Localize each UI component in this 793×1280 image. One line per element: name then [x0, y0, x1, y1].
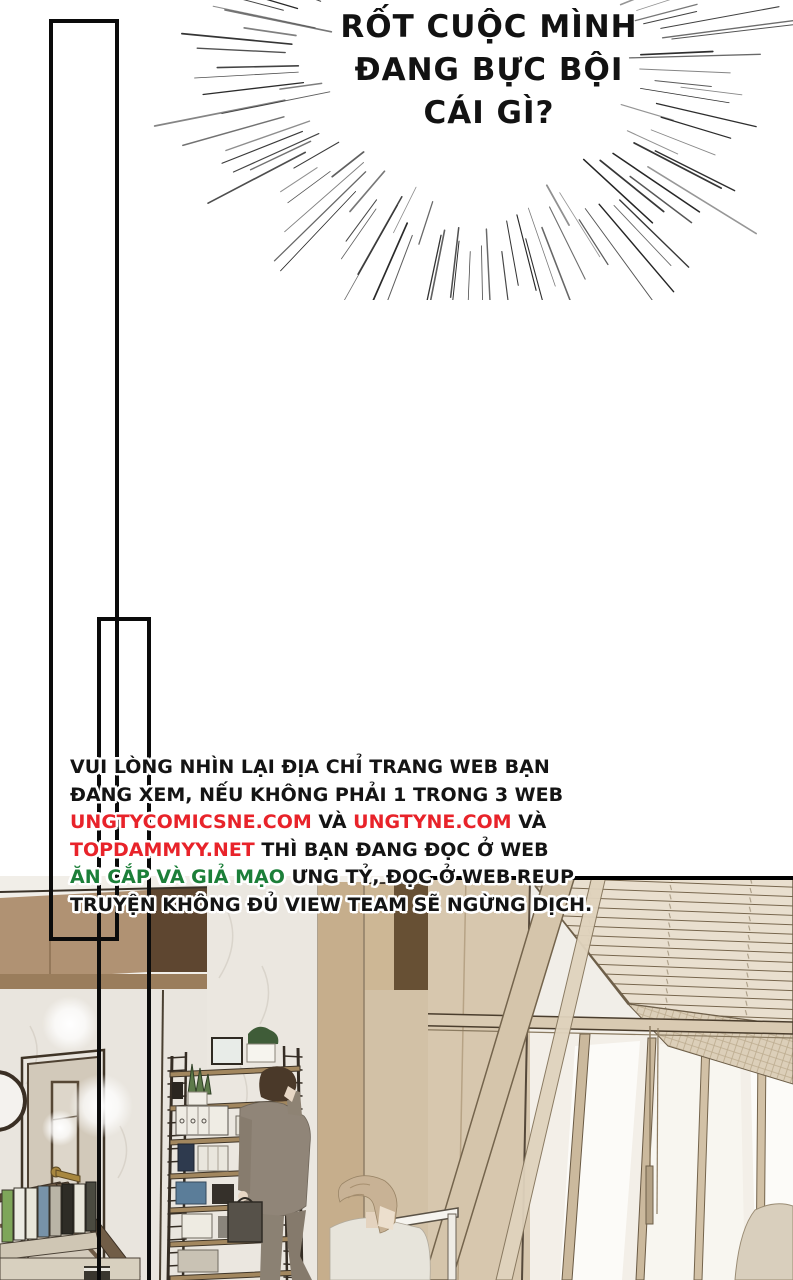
- speech-text: RỐT CUỘC MÌNH ĐANG BỰC BỘI CÁI GÌ?: [277, 6, 701, 135]
- site-link-text: TOPDAMMYY.NET: [70, 839, 255, 861]
- notice-line: VUI LÒNG NHÌN LẠI ĐỊA CHỈ TRANG WEB BẠN: [70, 754, 592, 782]
- site-link-text: UNGTYNE.COM: [353, 811, 511, 833]
- translator-notice: VUI LÒNG NHÌN LẠI ĐỊA CHỈ TRANG WEB BẠN …: [70, 754, 592, 919]
- notice-line: ĐANG XEM, NẾU KHÔNG PHẢI 1 TRONG 3 WEB: [70, 782, 592, 810]
- site-link-text: UNGTYCOMICSNE.COM: [70, 811, 312, 833]
- notice-line: TRUYỆN KHÔNG ĐỦ VIEW TEAM SẼ NGỪNG DỊCH.: [70, 892, 592, 920]
- warning-text: ĂN CẮP VÀ GIẢ MẠO: [70, 866, 285, 888]
- panel-border-2: [97, 617, 151, 1280]
- notice-line: UNGTYCOMICSNE.COM VÀ UNGTYNE.COM VÀ: [70, 809, 592, 837]
- speech-line: ĐANG BỰC BỘI: [277, 49, 701, 92]
- speech-line: CÁI GÌ?: [277, 92, 701, 135]
- speech-line: RỐT CUỘC MÌNH: [277, 6, 701, 49]
- comic-page: RỐT CUỘC MÌNH ĐANG BỰC BỘI CÁI GÌ?: [0, 0, 793, 1280]
- notice-line: TOPDAMMYY.NET THÌ BẠN ĐANG ĐỌC Ở WEB: [70, 837, 592, 865]
- notice-line: ĂN CẮP VÀ GIẢ MẠO ƯNG TỶ, ĐỌC Ở WEB REUP: [70, 864, 592, 892]
